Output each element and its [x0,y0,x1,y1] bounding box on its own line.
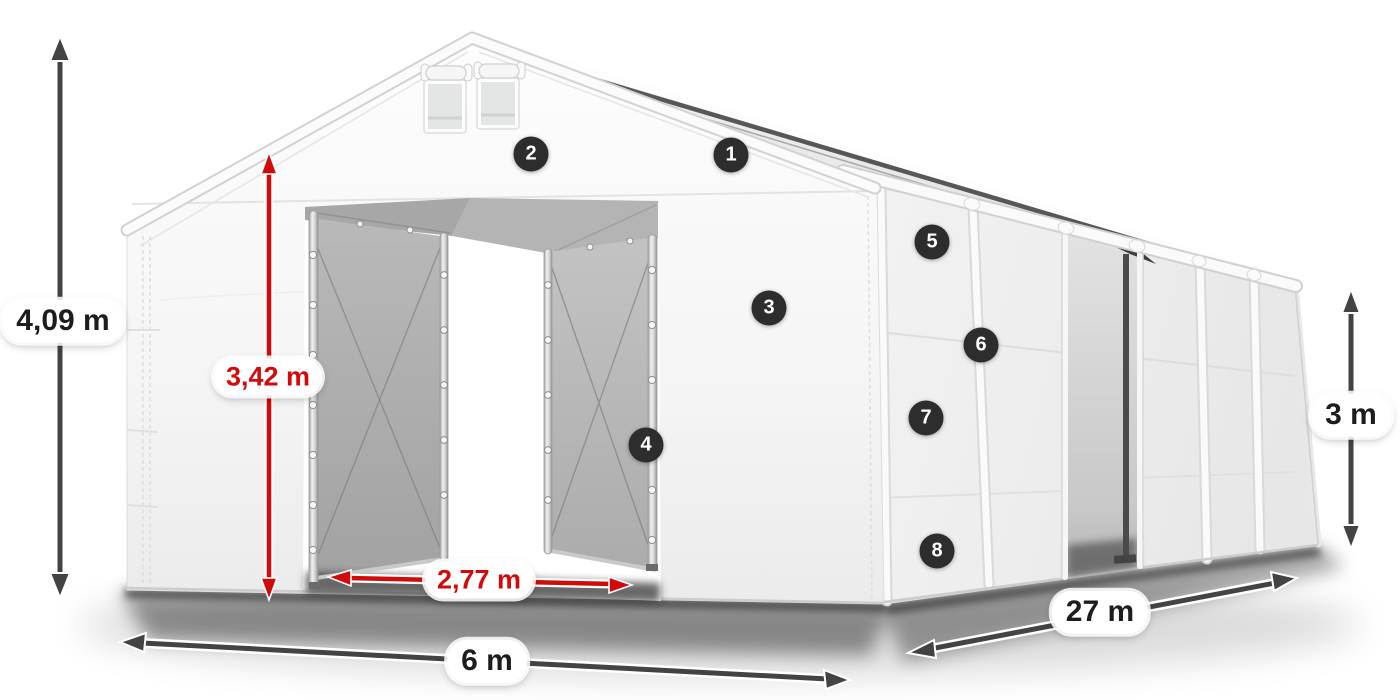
feature-badge-1[interactable]: 1 [714,138,749,173]
feature-badge-5[interactable]: 5 [915,225,950,260]
window-right [474,62,525,129]
dimension-label-door-width: 2,77 m [425,561,533,598]
dimension-label-front-width: 6 m [447,640,527,683]
feature-badge-4[interactable]: 4 [629,428,664,463]
feature-badge-2[interactable]: 2 [514,137,549,172]
window-left [421,64,472,133]
dimension-label-total-height: 4,09 m [2,300,123,343]
feature-badge-3[interactable]: 3 [752,291,787,326]
product-diagram: 1 2 3 4 5 6 7 8 4,09 m 3,42 m 2,77 m 6 m… [0,0,1400,700]
feature-badge-8[interactable]: 8 [920,534,955,569]
feature-badge-7[interactable]: 7 [909,401,944,436]
dimension-label-door-height: 3,42 m [214,358,322,395]
dimension-label-side-height: 3 m [1311,394,1391,437]
tent-illustration [0,0,1400,700]
side-door-opening [1062,233,1156,577]
feature-badge-6[interactable]: 6 [964,328,999,363]
dimension-label-length: 27 m [1052,591,1148,634]
side-door-pole [1123,254,1129,562]
front-door-opening [303,198,661,602]
